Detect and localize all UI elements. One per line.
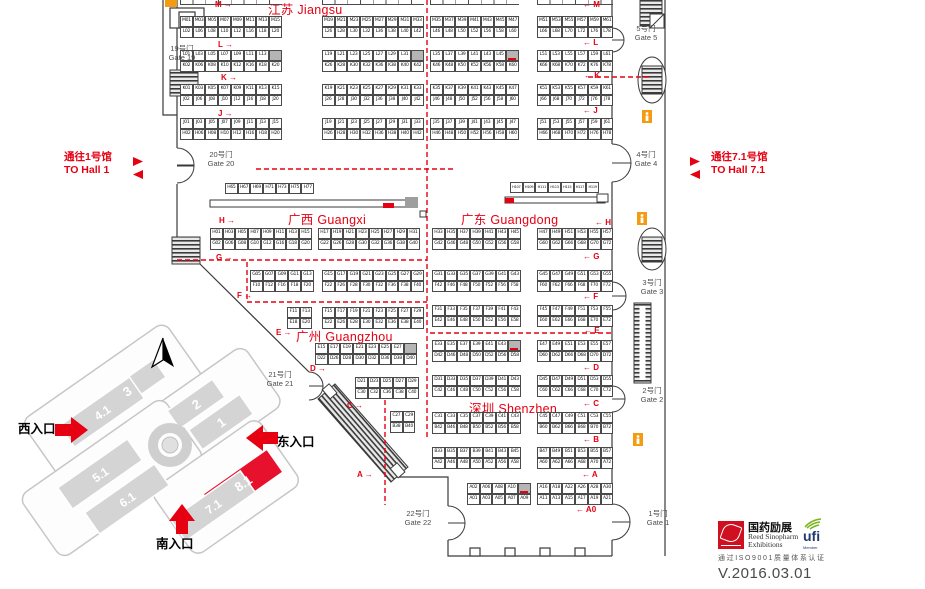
booth-J03: J03 [193, 118, 206, 129]
row-marker-e-left: E → [276, 329, 292, 337]
booth-M11: M11 [244, 16, 257, 27]
row-marker-h-right: ← H [595, 219, 611, 227]
booth-K58: K58 [494, 61, 507, 72]
booth-H49: H49 [550, 228, 563, 239]
gate-label-gate-4: 4号门Gate 4 [624, 150, 668, 169]
booth-G39: G39 [483, 270, 496, 281]
booth-F72: F72 [601, 281, 614, 292]
booth-A50: A50 [470, 458, 483, 469]
booth-C62: C62 [550, 386, 563, 397]
booth-K18: K18 [256, 61, 269, 72]
booth-G08: G08 [235, 239, 248, 250]
booth-A03: A03 [480, 494, 493, 505]
booth-H71: H71 [263, 183, 276, 194]
booth-L08: L08 [205, 27, 218, 38]
booth-D21: D21 [355, 377, 368, 388]
booth-G55: G55 [601, 270, 614, 281]
booth-L32: L32 [360, 27, 373, 38]
booth-G48: G48 [457, 239, 470, 250]
booth-H19: H19 [331, 228, 344, 239]
booth-H77: H77 [301, 183, 314, 194]
booth-H68: H68 [550, 129, 563, 140]
booth-J46: J46 [430, 95, 443, 106]
booth-J10: J10 [218, 95, 231, 106]
booth-F31: F31 [432, 305, 445, 316]
booth-J01: J01 [180, 118, 193, 129]
booth-K59: K59 [588, 84, 601, 95]
ufi-logo: ufi [803, 529, 820, 543]
booth-K12: K12 [231, 61, 244, 72]
booth-G26: G26 [331, 239, 344, 250]
booth-L58: L58 [494, 27, 507, 38]
booth-K39: K39 [455, 84, 468, 95]
booth-K78: K78 [601, 61, 614, 72]
booth-G29: G29 [411, 270, 424, 281]
booth-J47: J47 [506, 118, 519, 129]
booth-J20: J20 [269, 95, 282, 106]
row-marker-e-right: ← E [584, 327, 600, 335]
booth-H27: H27 [382, 228, 395, 239]
booth-M41: M41 [468, 16, 481, 27]
booth-F21: F21 [360, 307, 373, 318]
booth-G33: G33 [445, 270, 458, 281]
booth-B47: B47 [537, 447, 550, 458]
booth-H52: H52 [468, 129, 481, 140]
booth-G32: G32 [369, 239, 382, 250]
booth-E40: E40 [411, 318, 424, 329]
booth-D42: D42 [432, 351, 445, 362]
gate-label-en: Gate 20 [196, 159, 246, 168]
entrance-label-south: 南入口 [156, 533, 194, 552]
booth-K15: K15 [269, 84, 282, 95]
booth-M37: M37 [443, 16, 456, 27]
booth-D51: D51 [575, 375, 588, 386]
booth-D70: D70 [588, 351, 601, 362]
booth-G42: G42 [432, 239, 445, 250]
booth-M53: M53 [550, 16, 563, 27]
booth-B56: B56 [496, 423, 509, 434]
booth-C36: C36 [380, 388, 393, 399]
booth-L10: L10 [218, 27, 231, 38]
row-marker-k-right: ← K [584, 72, 600, 80]
booth-K48: K48 [443, 61, 456, 72]
booth-L36: L36 [373, 27, 386, 38]
booth-H26: H26 [322, 129, 335, 140]
booth-C55: C55 [601, 412, 614, 423]
booth-J07: J07 [218, 118, 231, 129]
booth-F22: F22 [322, 281, 335, 292]
booth-J16: J16 [244, 95, 257, 106]
booth-A19: A19 [588, 494, 601, 505]
booth-F41: F41 [496, 305, 509, 316]
booth-J06: J06 [193, 95, 206, 106]
booth-M55: M55 [562, 16, 575, 27]
row-marker-h-left: H → [219, 217, 235, 225]
row-marker-j-left: J → [218, 110, 233, 118]
booth-D56: D56 [496, 351, 509, 362]
booth-K21: K21 [335, 84, 348, 95]
booth-K23: K23 [347, 84, 360, 95]
booth-J30: J30 [347, 95, 360, 106]
booth-G27: G27 [398, 270, 411, 281]
booth-D62: D62 [550, 351, 563, 362]
booth-H60: H60 [506, 129, 519, 140]
booth-H12: H12 [231, 129, 244, 140]
booth-A13: A13 [550, 494, 563, 505]
booth-E48: E48 [457, 316, 470, 327]
booth-E36: E36 [386, 318, 399, 329]
gate-label-en: Gate 5 [624, 33, 668, 42]
booth-M19: M19 [322, 16, 335, 27]
booth-J78: J78 [601, 95, 614, 106]
booth-C58: C58 [508, 386, 521, 397]
gate-label-en: Gate 22 [394, 518, 442, 527]
booth-D36: D36 [379, 354, 392, 365]
row-marker-g-left: G → [216, 254, 232, 262]
booth-A10: A10 [505, 483, 518, 494]
booth-B70: B70 [588, 423, 601, 434]
booth-G20: G20 [299, 239, 312, 250]
booth-K50: K50 [455, 61, 468, 72]
booth-C29: C29 [403, 411, 416, 422]
booth-H21: H21 [343, 228, 356, 239]
booth-K55: K55 [562, 84, 575, 95]
booth-D39: D39 [483, 375, 496, 386]
booth-L30: L30 [347, 27, 360, 38]
booth-A70: A70 [588, 458, 601, 469]
booth-H11: H11 [274, 228, 287, 239]
booth-D25: D25 [380, 377, 393, 388]
booth-A06: A06 [480, 483, 493, 494]
iso-certification-line: 通过ISO9001质量体系认证 [718, 553, 826, 563]
booth-L72: L72 [575, 27, 588, 38]
booth-L26: L26 [322, 27, 335, 38]
booth-G18: G18 [286, 239, 299, 250]
booth-K19: K19 [322, 84, 335, 95]
booth-G21: G21 [360, 270, 373, 281]
booth-C46: C46 [445, 386, 458, 397]
row-marker-c-left: C → [347, 402, 363, 410]
booth-L45: L45 [494, 50, 507, 61]
booth-H25: H25 [369, 228, 382, 239]
row-marker-g-right: ← G [583, 253, 599, 261]
region-title-guangdong: 广东 Guangdong [461, 209, 558, 228]
row-marker-d-right: ← D [583, 364, 599, 372]
booth-F12: F12 [263, 281, 276, 292]
booth-G70: G70 [588, 239, 601, 250]
booth-K33: K33 [411, 84, 424, 95]
booth-L56: L56 [481, 27, 494, 38]
booth-J29: J29 [386, 118, 399, 129]
booth-M33: M33 [411, 16, 424, 27]
booth-E41: E41 [483, 340, 496, 351]
gate-label-en: Gate 1 [636, 518, 680, 527]
row-marker-l-right: ← L [583, 39, 598, 47]
booth-K08: K08 [205, 61, 218, 72]
booth-K68: K68 [550, 61, 563, 72]
booth-E56: E56 [496, 316, 509, 327]
booth-K37: K37 [443, 84, 456, 95]
booth-F68: F68 [575, 281, 588, 292]
booth-G60: G60 [537, 239, 550, 250]
booth-H41: H41 [483, 228, 496, 239]
booth-D31: D31 [432, 375, 445, 386]
booth-G45: G45 [537, 270, 550, 281]
booth-K16: K16 [244, 61, 257, 72]
booth-J57: J57 [575, 118, 588, 129]
booth-F56: F56 [496, 281, 509, 292]
booth-J32: J32 [360, 95, 373, 106]
booth-A08: A08 [492, 483, 505, 494]
booth-F49: F49 [562, 305, 575, 316]
booth-A22: A22 [562, 483, 575, 494]
gate-label-gate-2: 2号门Gate 2 [630, 386, 674, 405]
booth-B72: B72 [601, 423, 614, 434]
booth-J52: J52 [468, 95, 481, 106]
booth-E42: E42 [432, 316, 445, 327]
booth-M03: M03 [193, 16, 206, 27]
booth-F39: F39 [483, 305, 496, 316]
booth-G28: G28 [343, 239, 356, 250]
booth-G56: G56 [496, 239, 509, 250]
booth-F48: F48 [457, 281, 470, 292]
booth-H46: H46 [430, 129, 443, 140]
booth-B37: B37 [457, 447, 470, 458]
booth-A60: A60 [537, 458, 550, 469]
booth-M59: M59 [588, 16, 601, 27]
booth-G40: G40 [407, 239, 420, 250]
booth-L16: L16 [244, 27, 257, 38]
booth-K29: K29 [386, 84, 399, 95]
booth-K42: K42 [411, 61, 424, 72]
booth-H78: H78 [601, 129, 614, 140]
booth-H10: H10 [218, 129, 231, 140]
booth-D30: D30 [353, 354, 366, 365]
row-marker-a-left: A → [357, 471, 373, 479]
booth-F66: F66 [562, 281, 575, 292]
booth-K01: K01 [180, 84, 193, 95]
booth-D68: D68 [575, 351, 588, 362]
booth-C56: C56 [496, 386, 509, 397]
booth-J28: J28 [335, 95, 348, 106]
booth-K25: K25 [360, 84, 373, 95]
booth-B41: B41 [483, 447, 496, 458]
booth-M45: M45 [494, 16, 507, 27]
booth-E19: E19 [340, 343, 353, 354]
booth-J51: J51 [537, 118, 550, 129]
booth-C39: C39 [483, 412, 496, 423]
booth-F33: F33 [445, 305, 458, 316]
booth-D45: D45 [537, 375, 550, 386]
booth-F36: F36 [386, 281, 399, 292]
gate-label-cn: 20号门 [196, 150, 246, 159]
booth-B33: B33 [432, 447, 445, 458]
booth-G02: G02 [210, 239, 223, 250]
booth-F23: F23 [373, 307, 386, 318]
booth-E55: E55 [588, 340, 601, 351]
booth-D48: D48 [457, 351, 470, 362]
booth-K32: K32 [360, 61, 373, 72]
booth-J21: J21 [335, 118, 348, 129]
booth-J39: J39 [455, 118, 468, 129]
booth-H57: H57 [601, 228, 614, 239]
booth-H08: H08 [205, 129, 218, 140]
booth-J72: J72 [575, 95, 588, 106]
booth-C37: C37 [470, 412, 483, 423]
booth-H73: H73 [276, 183, 289, 194]
booth-B39: B39 [470, 447, 483, 458]
booth-J58: J58 [494, 95, 507, 106]
booth-G30: G30 [356, 239, 369, 250]
booth-E17: E17 [328, 343, 341, 354]
booth-G38: G38 [394, 239, 407, 250]
booth-row-partial [322, 0, 424, 5]
booth-H09: H09 [261, 228, 274, 239]
booth-F26: F26 [335, 281, 348, 292]
booth-L40: L40 [398, 27, 411, 38]
booth-H109: H109 [523, 182, 536, 193]
booth-H02: H02 [180, 129, 193, 140]
booth-A07: A07 [505, 494, 518, 505]
booth-red-mark [520, 491, 528, 494]
booth-M27: M27 [373, 16, 386, 27]
booth-M01: M01 [180, 16, 193, 27]
booth-J55: J55 [562, 118, 575, 129]
booth-G58: G58 [508, 239, 521, 250]
booth-E15: E15 [315, 343, 328, 354]
row-marker-l-left: L → [218, 41, 233, 49]
booth-E52: E52 [483, 316, 496, 327]
booth-M05: M05 [205, 16, 218, 27]
booth-C45: C45 [537, 412, 550, 423]
booth-K56: K56 [481, 61, 494, 72]
booth-A11: A11 [537, 494, 550, 505]
booth-J33: J33 [411, 118, 424, 129]
reed-sinopharm-logo [718, 521, 744, 549]
booth-B68: B68 [575, 423, 588, 434]
booth-F29: F29 [411, 307, 424, 318]
booth-F30: F30 [360, 281, 373, 292]
booth-H39: H39 [470, 228, 483, 239]
booth-H48: H48 [443, 129, 456, 140]
booth-C70: C70 [588, 386, 601, 397]
booth-J12: J12 [231, 95, 244, 106]
booth-M29: M29 [386, 16, 399, 27]
booth-C35: C35 [457, 412, 470, 423]
booth-K30: K30 [347, 61, 360, 72]
gate-label-cn: 2号门 [630, 386, 674, 395]
booth-D50: D50 [470, 351, 483, 362]
booth-H29: H29 [394, 228, 407, 239]
booth-G62: G62 [550, 239, 563, 250]
booth-E51: E51 [562, 340, 575, 351]
booth-G37: G37 [470, 270, 483, 281]
booth-G22: G22 [318, 239, 331, 250]
booth-red-mark [508, 58, 516, 61]
booth-G15: G15 [322, 270, 335, 281]
booth-H01: H01 [210, 228, 223, 239]
booth-H35: H35 [445, 228, 458, 239]
booth-M07: M07 [218, 16, 231, 27]
booth-E27: E27 [391, 343, 404, 354]
booth-M51: M51 [537, 16, 550, 27]
booth-K35: K35 [430, 84, 443, 95]
booth-D60: D60 [537, 351, 550, 362]
booth-A01: A01 [467, 494, 480, 505]
booth-M47: M47 [506, 16, 519, 27]
booth-G13: G13 [301, 270, 314, 281]
booth-H70: H70 [562, 129, 575, 140]
booth-C43: C43 [508, 412, 521, 423]
booth-F25: F25 [386, 307, 399, 318]
booth-B43: B43 [496, 447, 509, 458]
booth-L76: L76 [588, 27, 601, 38]
booth-F28: F28 [347, 281, 360, 292]
booth-K43: K43 [481, 84, 494, 95]
booth-F32: F32 [373, 281, 386, 292]
booth-D66: D66 [562, 351, 575, 362]
booth-A05: A05 [492, 494, 505, 505]
booth-J42: J42 [411, 95, 424, 106]
booth-H16: H16 [244, 129, 257, 140]
booth-empty [404, 343, 417, 354]
booth-M31: M31 [398, 16, 411, 27]
booth-H115: H115 [561, 182, 574, 193]
booth-L02: L02 [180, 27, 193, 38]
gate-label-cn: 5号门 [624, 24, 668, 33]
booth-C50: C50 [470, 386, 483, 397]
booth-L25: L25 [360, 50, 373, 61]
booth-K41: K41 [468, 84, 481, 95]
booth-E58: E58 [508, 316, 521, 327]
booth-L29: L29 [386, 50, 399, 61]
booth-F18: F18 [288, 281, 301, 292]
booth-C49: C49 [562, 412, 575, 423]
booth-L23: L23 [347, 50, 360, 61]
booth-L39: L39 [455, 50, 468, 61]
booth-G25: G25 [386, 270, 399, 281]
booth-F38: F38 [398, 281, 411, 292]
booth-A58: A58 [508, 458, 521, 469]
booth-L59: L59 [588, 50, 601, 61]
row-marker-b-right: ← B [583, 436, 599, 444]
booth-F52: F52 [483, 281, 496, 292]
booth-F60: F60 [537, 281, 550, 292]
booth-K09: K09 [231, 84, 244, 95]
gate-label-gate-22: 22号门Gate 22 [394, 509, 442, 528]
region-title-guangxi: 广西 Guangxi [288, 209, 366, 228]
booth-B50: B50 [470, 423, 483, 434]
booth-C48: C48 [457, 386, 470, 397]
booth-H119: H119 [586, 182, 599, 193]
booth-L38: L38 [386, 27, 399, 38]
booth-H33: H33 [432, 228, 445, 239]
booth-C38: C38 [393, 388, 406, 399]
booth-J36: J36 [373, 95, 386, 106]
entrance-label-east: 东入口 [277, 431, 315, 450]
booth-L70: L70 [562, 27, 575, 38]
booth-D52: D52 [483, 351, 496, 362]
booth-A28: A28 [588, 483, 601, 494]
booth-B49: B49 [550, 447, 563, 458]
booth-H42: H42 [411, 129, 424, 140]
booth-K38: K38 [386, 61, 399, 72]
booth-F27: F27 [398, 307, 411, 318]
booth-G11: G11 [288, 270, 301, 281]
booth-F35: F35 [457, 305, 470, 316]
booth-J27: J27 [373, 118, 386, 129]
booth-F43: F43 [508, 305, 521, 316]
